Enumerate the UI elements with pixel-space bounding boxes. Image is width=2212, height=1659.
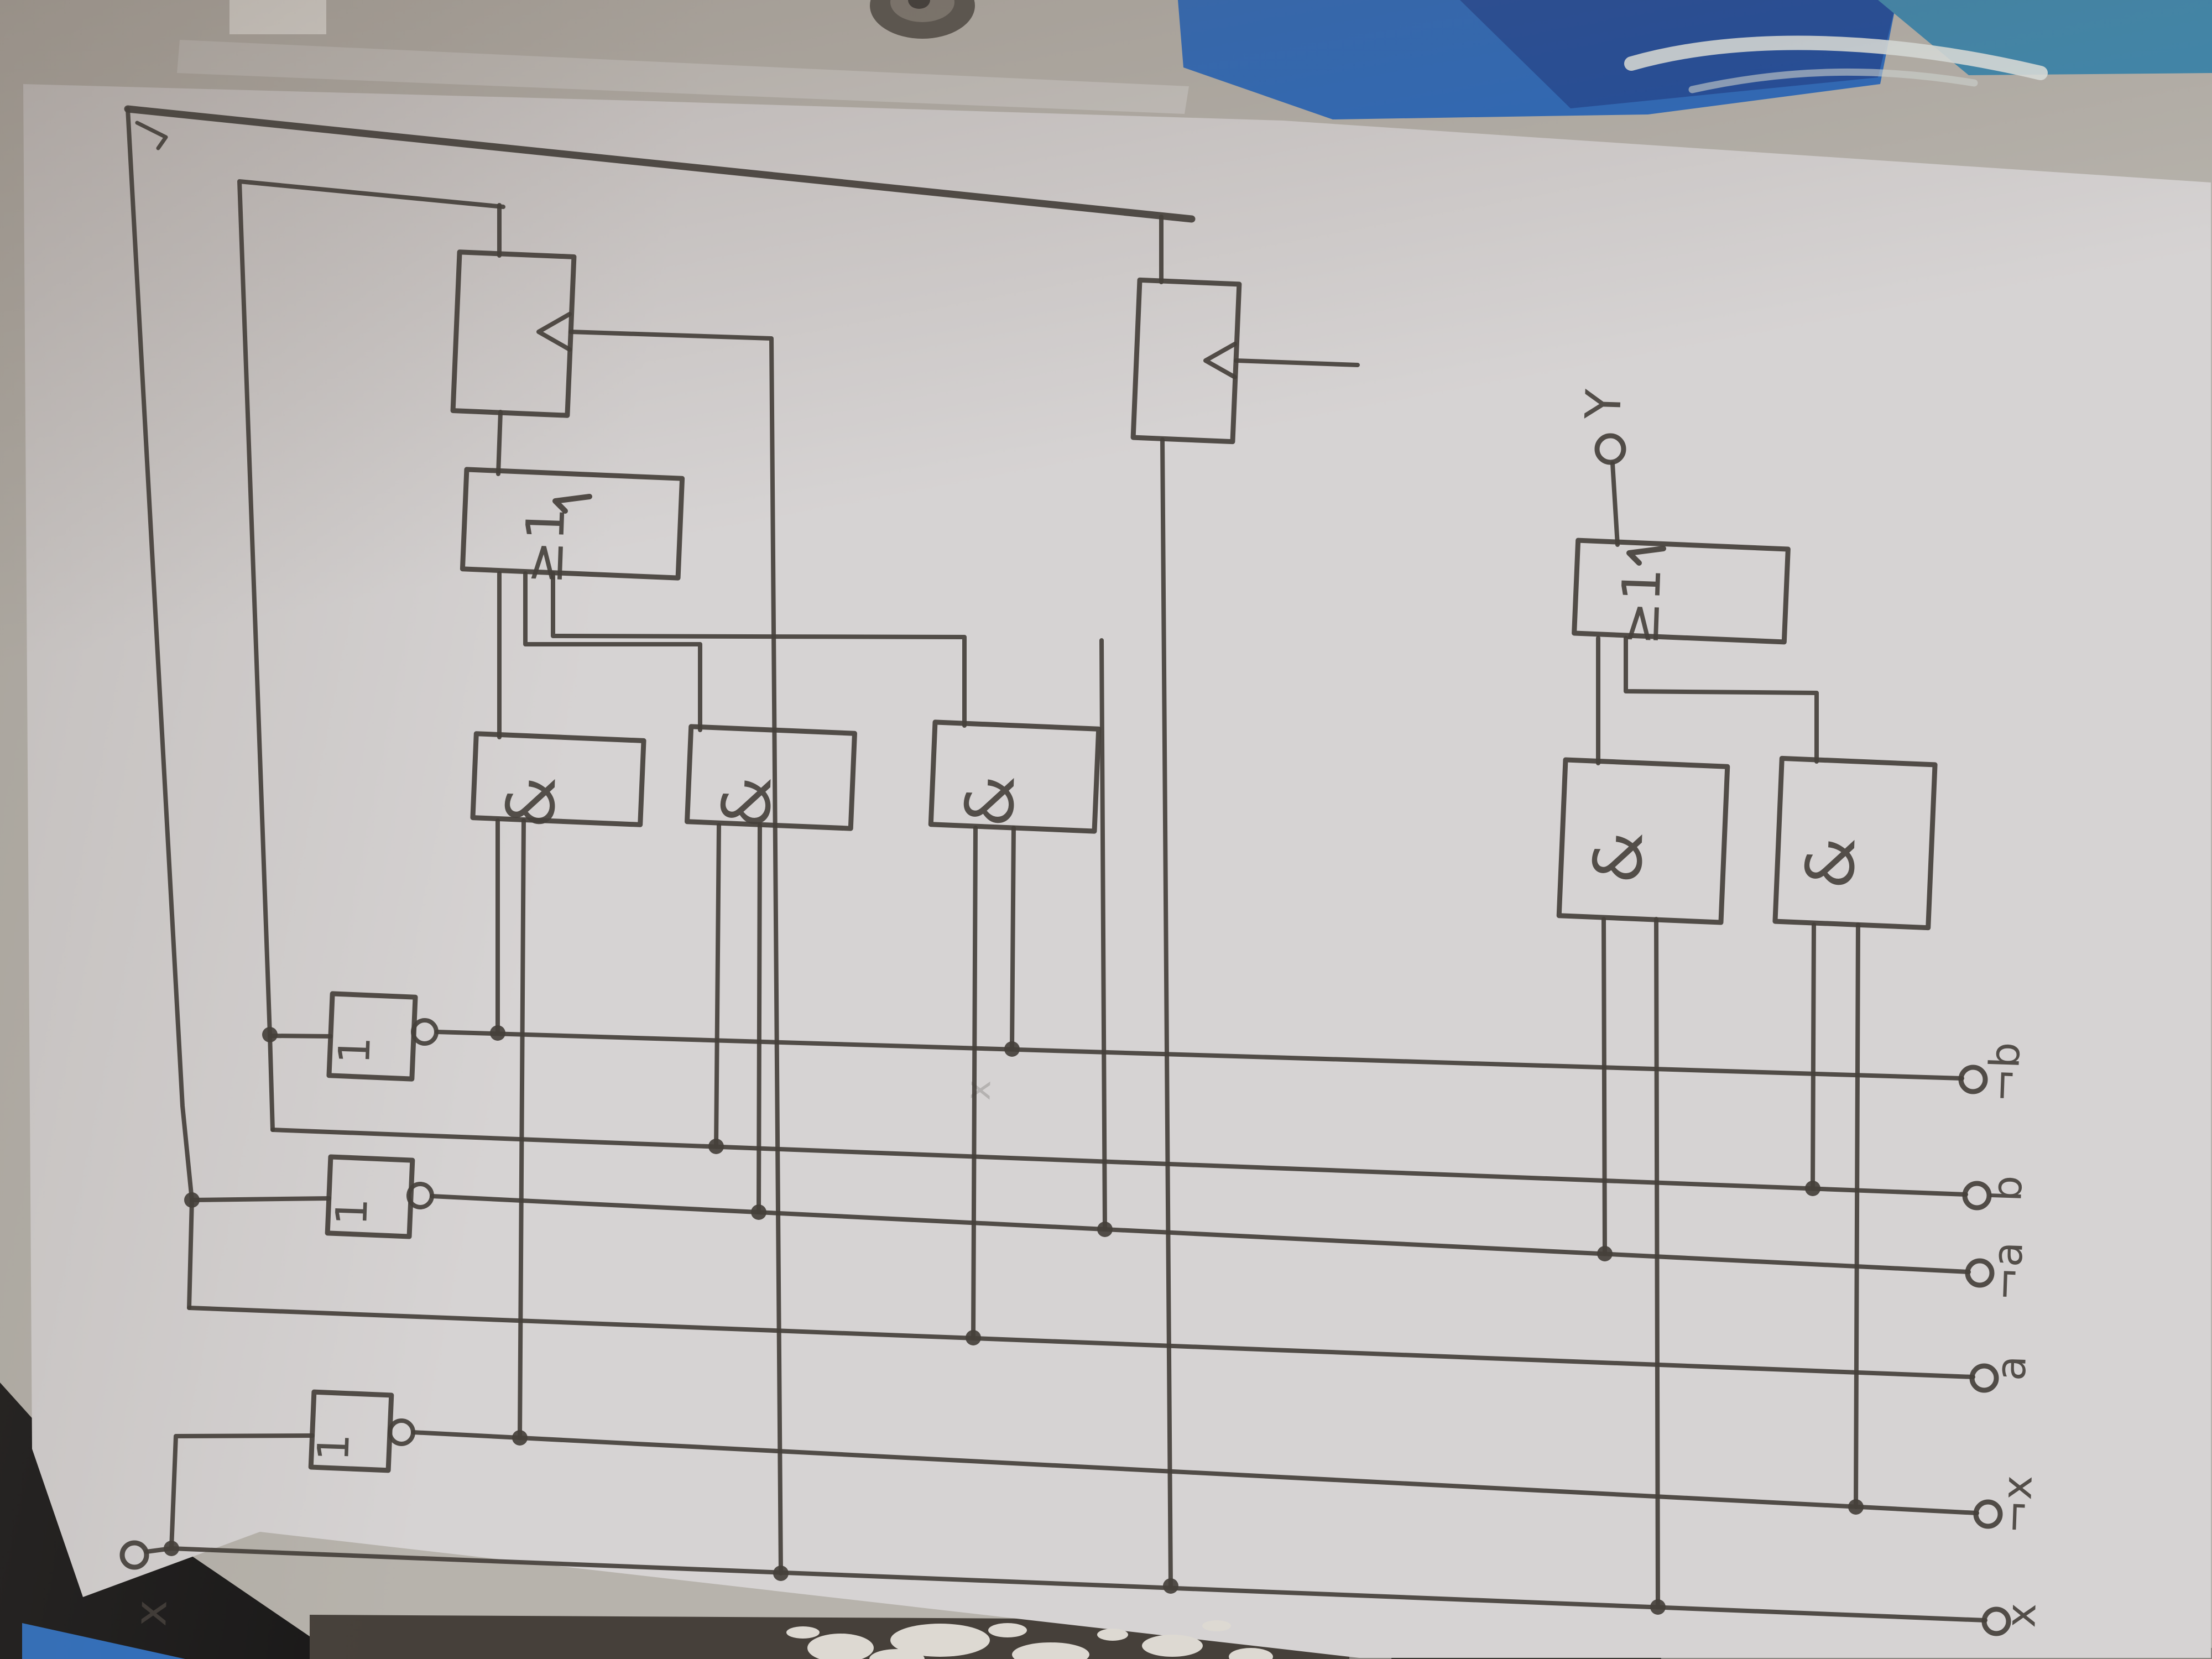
junction-dot-2 [1004,1041,1020,1057]
inv2-in [192,1198,329,1200]
splatter-8 [1097,1629,1128,1641]
junction-dot-3 [708,1139,724,1154]
inverter-1-label: 1 [330,1036,380,1065]
circuit-diagram-canvas: ≥1≥1&&&&&111Y¬bb¬aa¬xxxx [0,0,2212,1659]
input-label-a: a [1987,1355,2036,1381]
junction-dot-7 [1097,1222,1113,1237]
input-label-b: b [1983,1175,2032,1202]
input-label-x: x [1997,1603,2045,1629]
junction-dot-5 [184,1192,200,1208]
and4-in1 [1604,919,1605,1254]
or1-out-to-ff1-d [498,412,500,474]
junction-dot-13 [164,1541,179,1556]
paper-shadow-left [0,0,2212,1659]
splatter-9 [786,1626,820,1639]
junction-dot-11 [512,1430,528,1446]
junction-dot-12 [1848,1499,1864,1515]
junction-dot-14 [773,1566,789,1581]
and-gate-2-label: & [708,775,786,829]
splatter-7 [988,1623,1027,1637]
junction-dot-1 [490,1025,505,1041]
input-label-x-left: x [124,1599,177,1627]
inverter-2-label: 1 [327,1197,378,1227]
and5-in1 [1813,925,1814,1188]
background-layer [0,0,2212,1659]
and-gate-3-label: & [951,774,1030,828]
and4-in2 [1656,919,1658,1607]
inverter-3-label: 1 [309,1433,359,1462]
junction-dot-4 [1805,1181,1820,1196]
junction-dot-8 [1597,1246,1613,1261]
and2-in2 [759,825,760,1212]
and-gate-5-label: & [1792,836,1870,890]
junction-dot-9 [966,1330,981,1345]
faint-scribble-x: x [957,1079,998,1101]
output-label-y: Y [1574,388,1632,421]
junction-dot-15 [1163,1578,1178,1594]
splatter-4 [1142,1635,1203,1657]
and5-in2 [1856,925,1858,1507]
photo-of-circuit-diagram: ≥1≥1&&&&&111Y¬bb¬aa¬xxxx [0,0,2212,1659]
and-gate-1-label: & [492,775,571,829]
junction-dot-6 [751,1204,766,1220]
and2-in1 [716,825,719,1146]
input-label-not-b: ¬b [1980,1041,2030,1103]
and3-in2 [1012,828,1014,1049]
inv1-in [270,1036,331,1036]
input-label-not-x: ¬x [1992,1475,2042,1535]
or-gate-2-label: ≥1 [1610,567,1673,646]
splatter-10 [1202,1620,1231,1631]
or-gate-1-label: ≥1 [514,506,577,586]
junction-dot-10 [262,1027,278,1042]
junction-dot-16 [1650,1599,1666,1615]
and-gate-4-label: & [1579,830,1658,884]
input-label-not-a: ¬a [1983,1241,2032,1302]
